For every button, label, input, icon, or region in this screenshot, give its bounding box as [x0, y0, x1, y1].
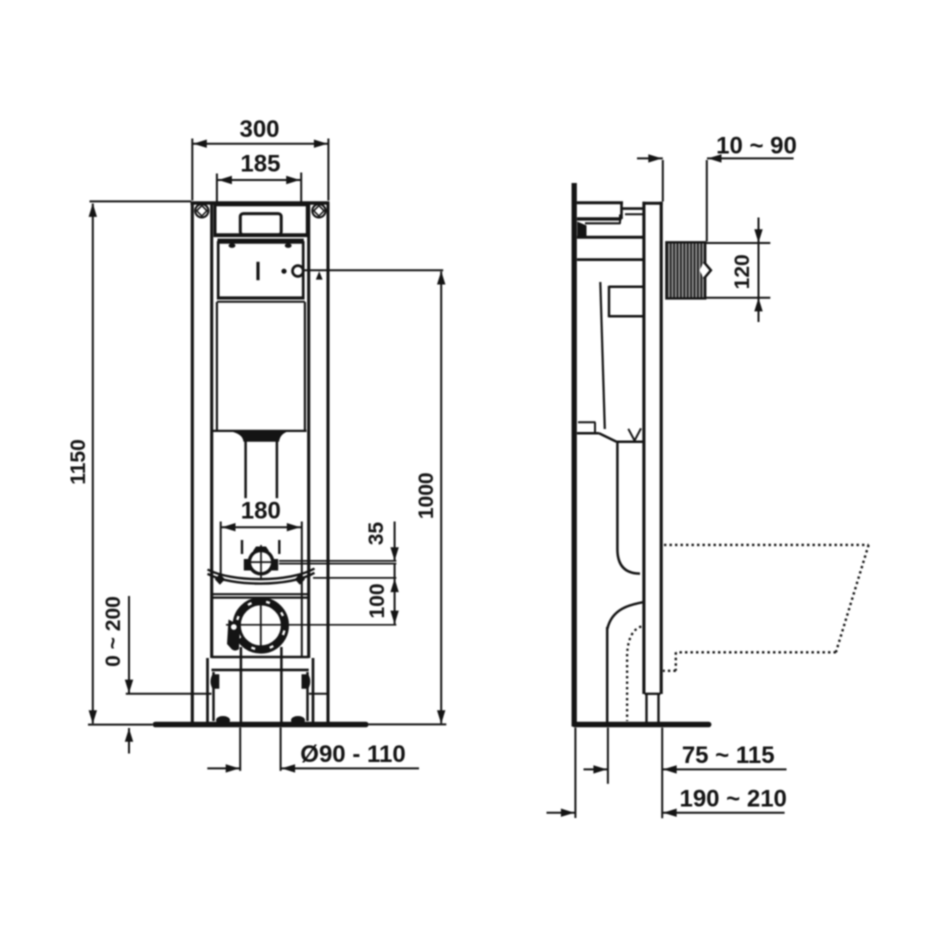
svg-text:100: 100 [366, 583, 389, 618]
svg-text:185: 185 [240, 151, 280, 178]
svg-text:1000: 1000 [415, 472, 438, 519]
svg-text:1150: 1150 [67, 439, 90, 485]
svg-text:35: 35 [365, 522, 388, 546]
svg-text:0 ~ 200: 0 ~ 200 [102, 596, 125, 667]
svg-text:180: 180 [241, 498, 281, 525]
svg-text:75 ~ 115: 75 ~ 115 [682, 742, 775, 769]
svg-text:300: 300 [239, 116, 279, 143]
svg-text:10 ~ 90: 10 ~ 90 [716, 133, 797, 160]
svg-text:120: 120 [731, 254, 754, 289]
svg-text:Ø90 - 110: Ø90 - 110 [300, 741, 405, 768]
svg-text:190 ~ 210: 190 ~ 210 [679, 786, 786, 813]
